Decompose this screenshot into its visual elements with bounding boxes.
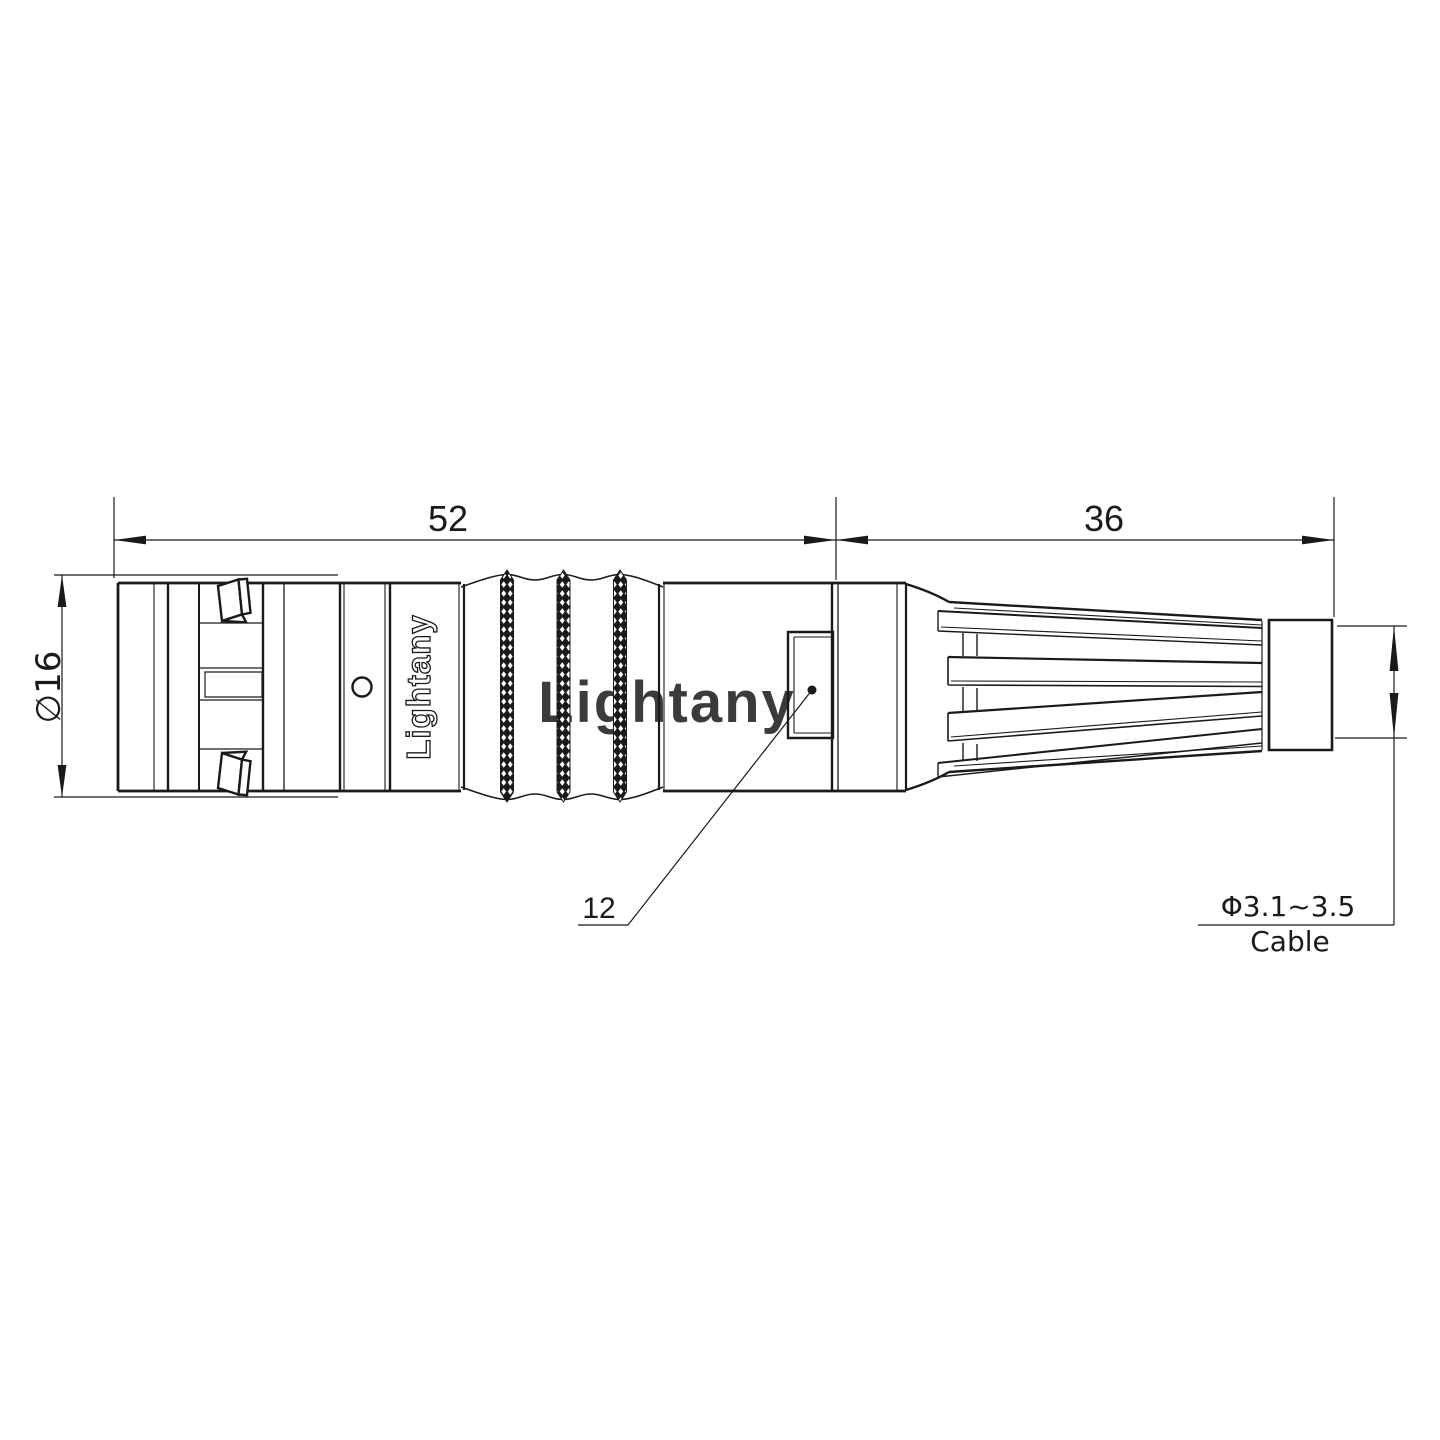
knurled-band-1 — [501, 570, 514, 802]
cable-label-text: Cable — [1250, 925, 1330, 958]
knurled-band-2 — [557, 570, 570, 802]
leader12-dot — [808, 686, 817, 695]
watermark-text: Lightany — [538, 670, 796, 735]
dim-body-diameter-text: ∅16 — [29, 651, 69, 724]
knurled-band-3 — [614, 570, 627, 802]
latch-lower-side — [239, 760, 251, 796]
leader-window-text: 12 — [582, 892, 615, 925]
drawing-canvas: Lightany — [0, 0, 1440, 1440]
dim-boot-length-text: 36 — [1084, 498, 1124, 539]
cable-diameter-text: Φ3.1~3.5 — [1221, 890, 1356, 923]
dim-body-length-text: 52 — [428, 498, 468, 539]
connector-drawing: Lightany — [0, 0, 1440, 1440]
latch-upper-side — [239, 579, 251, 615]
housing-brand-text: Lightany — [400, 614, 437, 760]
